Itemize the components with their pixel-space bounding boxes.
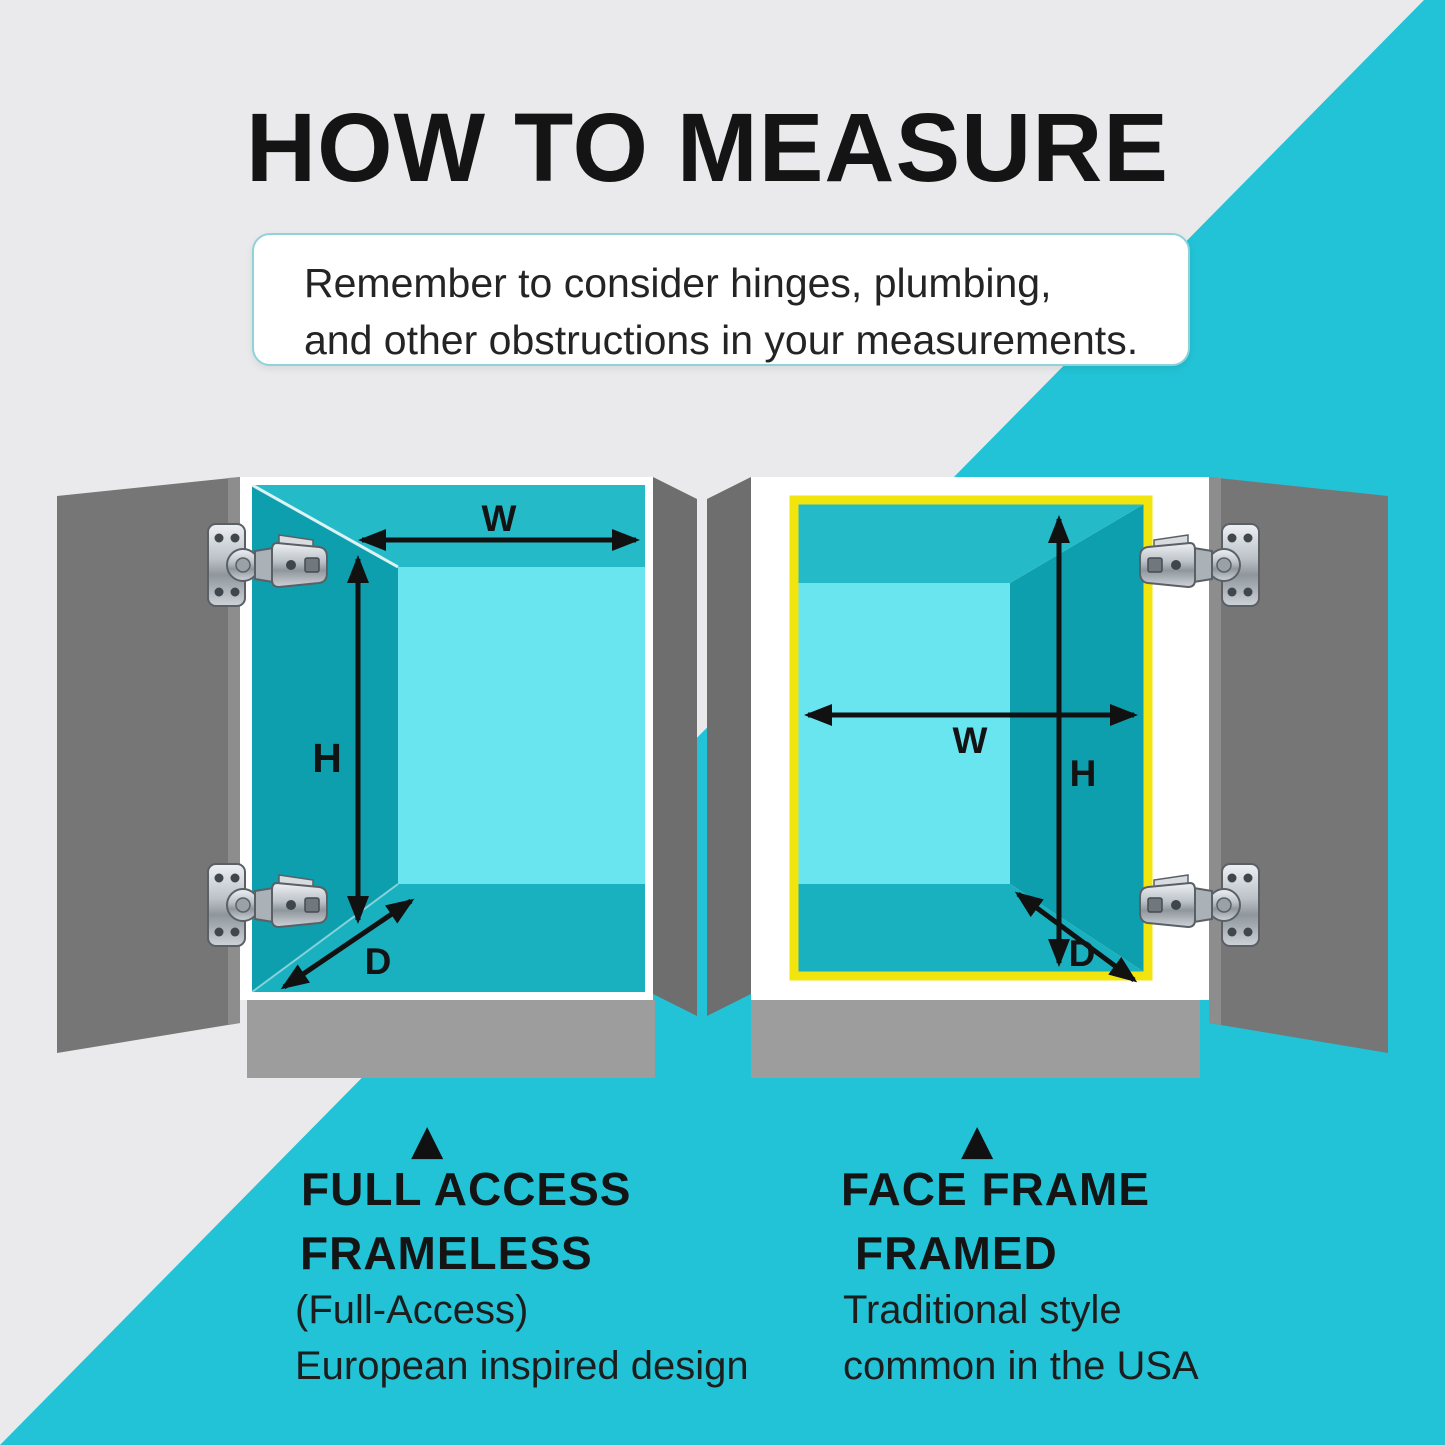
up-triangle-icon: ▲: [841, 1118, 1381, 1162]
cabinet-frameless: W H D: [57, 477, 697, 1078]
frameless-detail-1: (Full-Access): [295, 1286, 835, 1334]
note-line-2: and other obstructions in your measureme…: [304, 312, 1188, 369]
framed-type-label: FACE FRAME: [841, 1164, 1381, 1214]
frameless-interior-back-wall: [398, 567, 645, 884]
framed-caption: ▲ FACE FRAME FRAMED Traditional style co…: [841, 1118, 1381, 1390]
frameless-type-label: FULL ACCESS: [295, 1164, 835, 1214]
framed-detail-2: common in the USA: [841, 1342, 1381, 1390]
up-triangle-icon: ▲: [295, 1118, 835, 1162]
frameless-caption: ▲ FULL ACCESS FRAMELESS (Full-Access) Eu…: [295, 1118, 835, 1390]
framed-style-name: FRAMED: [841, 1228, 1381, 1278]
framed-detail-1: Traditional style: [841, 1286, 1381, 1334]
note-box: Remember to consider hinges, plumbing, a…: [252, 233, 1190, 366]
frameless-depth-label: D: [365, 941, 392, 982]
framed-side-panel: [707, 477, 751, 1016]
frameless-width-label: W: [482, 498, 517, 539]
frameless-height-label: H: [312, 735, 342, 781]
frameless-side-panel: [653, 477, 697, 1016]
cabinet-framed: W H D: [707, 477, 1388, 1078]
frameless-style-name: FRAMELESS: [295, 1228, 835, 1278]
frameless-detail-2: European inspired design: [295, 1342, 835, 1390]
framed-depth-label: D: [1069, 933, 1096, 974]
page-title: HOW TO MEASURE: [0, 92, 1415, 204]
frameless-toe-kick-base: [247, 1000, 655, 1078]
how-to-measure-infographic: W H D W: [0, 0, 1445, 1445]
note-line-1: Remember to consider hinges, plumbing,: [304, 255, 1188, 312]
framed-width-label: W: [953, 720, 988, 761]
framed-height-label: H: [1070, 753, 1097, 794]
framed-toe-kick-base: [751, 1000, 1200, 1078]
